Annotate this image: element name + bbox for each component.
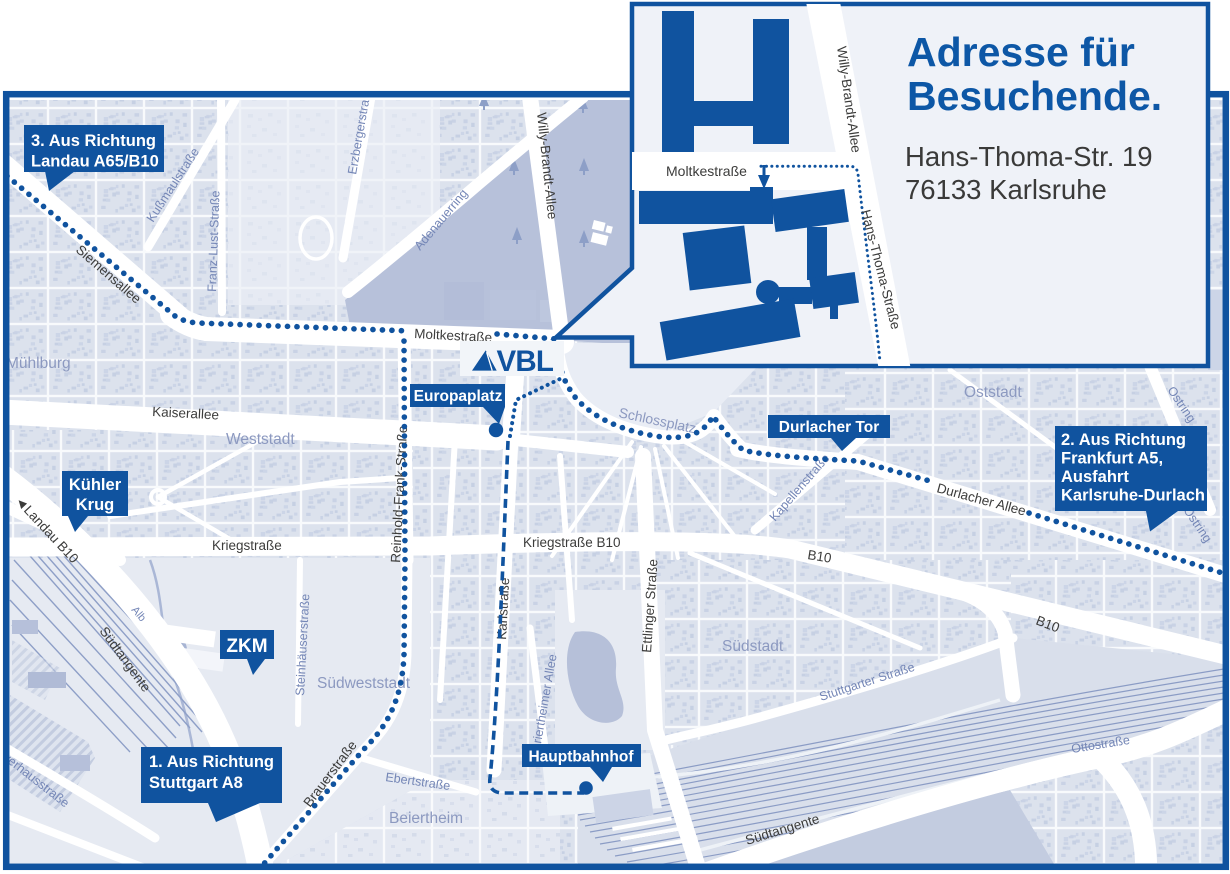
svg-text:Europaplatz: Europaplatz: [414, 388, 503, 405]
svg-text:Weststadt: Weststadt: [226, 431, 295, 448]
svg-text:Kriegstraße: Kriegstraße: [212, 538, 282, 553]
svg-text:Hauptbahnhof: Hauptbahnhof: [528, 749, 634, 766]
svg-text:Frankfurt A5,: Frankfurt A5,: [1061, 450, 1163, 468]
svg-text:Hans-Thoma-Str. 19: Hans-Thoma-Str. 19: [905, 141, 1153, 172]
svg-text:Landau A65/B10: Landau A65/B10: [31, 153, 159, 171]
svg-text:Moltkestraße: Moltkestraße: [666, 163, 747, 179]
svg-text:Stuttgart A8: Stuttgart A8: [149, 774, 243, 792]
svg-text:VBL: VBL: [497, 345, 554, 378]
svg-text:Krug: Krug: [76, 496, 115, 514]
svg-text:Karlsruhe-Durlach: Karlsruhe-Durlach: [1061, 487, 1205, 505]
svg-text:Südstadt: Südstadt: [722, 638, 784, 655]
svg-text:3. Aus Richtung: 3. Aus Richtung: [31, 132, 156, 150]
svg-text:Mühlburg: Mühlburg: [6, 355, 71, 372]
svg-text:ZKM: ZKM: [226, 636, 267, 657]
svg-text:2. Aus Richtung: 2. Aus Richtung: [1061, 431, 1186, 449]
svg-text:Kühler: Kühler: [69, 476, 122, 494]
svg-text:1. Aus Richtung: 1. Aus Richtung: [149, 753, 274, 771]
svg-text:Durlacher Tor: Durlacher Tor: [779, 419, 880, 436]
svg-text:Ausfahrt: Ausfahrt: [1061, 468, 1129, 486]
svg-text:Besuchende.: Besuchende.: [907, 73, 1162, 119]
svg-text:Kriegstraße B10: Kriegstraße B10: [523, 535, 621, 550]
svg-text:Südweststadt: Südweststadt: [317, 675, 411, 692]
svg-text:Adresse für: Adresse für: [907, 29, 1135, 75]
svg-text:Oststadt: Oststadt: [964, 384, 1022, 401]
svg-text:Beiertheim: Beiertheim: [389, 810, 463, 827]
svg-text:76133 Karlsruhe: 76133 Karlsruhe: [905, 174, 1107, 205]
